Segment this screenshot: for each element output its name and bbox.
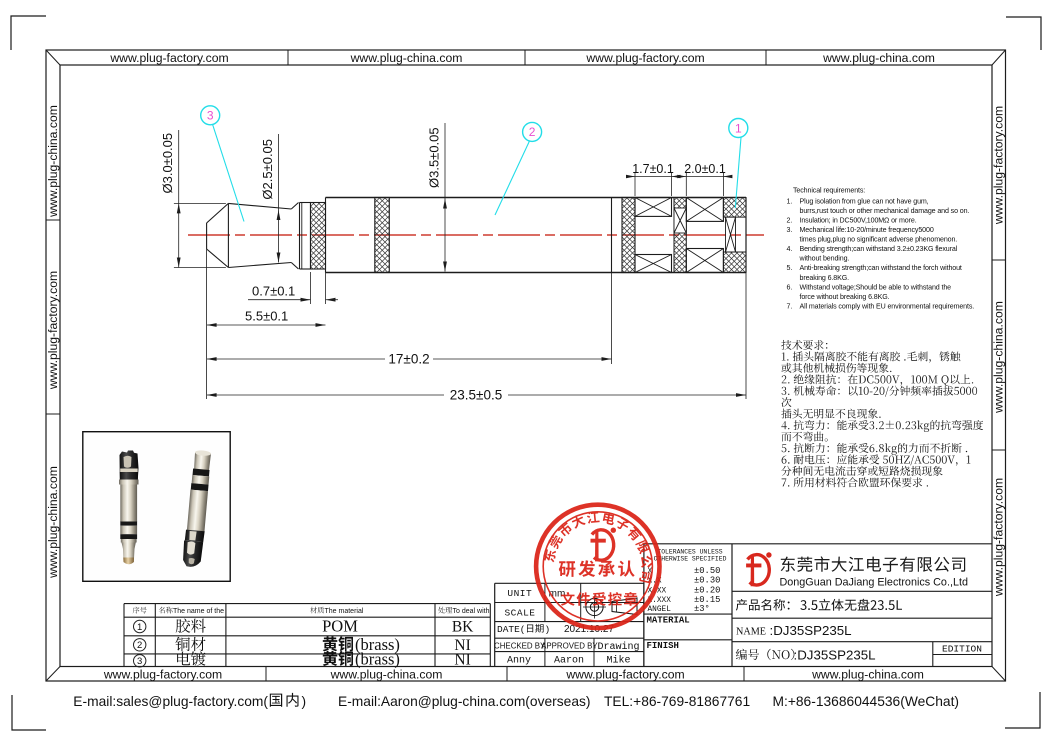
svg-text:BK: BK (452, 619, 474, 636)
svg-text:): ) (302, 694, 307, 709)
svg-text:EDITION: EDITION (942, 644, 982, 655)
svg-text:1: 1 (137, 622, 142, 633)
svg-text:3: 3 (137, 656, 142, 667)
svg-text:The material: The material (325, 608, 364, 615)
svg-text:www.plug-china.com: www.plug-china.com (46, 105, 60, 218)
svg-text:UNIT: UNIT (507, 588, 532, 599)
svg-text:Ø3.0±0.05: Ø3.0±0.05 (160, 133, 175, 194)
svg-text::DJ35SP235L: :DJ35SP235L (770, 623, 852, 638)
svg-text:www.plug-china.com: www.plug-china.com (992, 301, 1006, 414)
svg-text:4.: 4. (787, 245, 793, 253)
svg-text:TEL:+86-769-81867761: TEL:+86-769-81867761 (604, 694, 750, 709)
svg-text:www.plug-factory.com: www.plug-factory.com (46, 271, 60, 390)
svg-text:6.: 6. (787, 284, 793, 292)
svg-text:without bending.: without bending. (799, 255, 850, 263)
svg-text:www.plug-factory.com: www.plug-factory.com (103, 667, 222, 681)
svg-text:M:+86-13686044536(WeChat): M:+86-13686044536(WeChat) (773, 694, 960, 709)
svg-text:1.7±0.1: 1.7±0.1 (632, 162, 674, 176)
svg-text:www.plug-china.com: www.plug-china.com (350, 51, 463, 65)
svg-text:2: 2 (137, 640, 142, 651)
svg-text:Mechanical life:10-20/minute f: Mechanical life:10-20/minute frequency50… (800, 226, 934, 234)
svg-text:All materials comply with EU e: All materials comply with EU environment… (800, 303, 975, 311)
svg-text:Anti-breaking strength;can wit: Anti-breaking strength;can withstand the… (800, 264, 962, 272)
svg-text:burrs,rust touch or other mech: burrs,rust touch or other mechanical dam… (800, 207, 970, 215)
svg-text:1.: 1. (787, 197, 793, 205)
svg-text:www.plug-factory.com: www.plug-factory.com (585, 51, 704, 65)
svg-text:Anny: Anny (507, 656, 531, 667)
svg-text:7.: 7. (787, 303, 793, 311)
svg-text:DATE(: DATE( (497, 624, 526, 635)
svg-text:NAME: NAME (736, 627, 766, 638)
svg-text:3: 3 (207, 109, 214, 123)
svg-text:www.plug-china.com: www.plug-china.com (822, 51, 935, 65)
svg-text:The name of the: The name of the (173, 608, 224, 615)
svg-text:Plug isolation from glue can n: Plug isolation from glue can not have gu… (800, 197, 929, 205)
svg-text:To deal with: To deal with (453, 608, 490, 615)
svg-text:Technical requirements:: Technical requirements: (793, 187, 865, 195)
svg-text:17±0.2: 17±0.2 (388, 351, 429, 366)
svg-text:www.plug-china.com: www.plug-china.com (46, 466, 60, 579)
svg-text:Ø3.5±0.05: Ø3.5±0.05 (427, 127, 442, 188)
svg-text:±0.20: ±0.20 (694, 585, 720, 595)
svg-text:FINISH: FINISH (647, 641, 679, 651)
svg-text:(brass): (brass) (355, 650, 400, 669)
svg-text:): ) (545, 624, 551, 635)
svg-text:E-mail:Aaron@plug-china.com(ov: E-mail:Aaron@plug-china.com(overseas) (338, 694, 590, 709)
svg-text:CHECKED BY: CHECKED BY (494, 642, 546, 651)
svg-text:E-mail:sales@plug-factory.com(: E-mail:sales@plug-factory.com( (73, 694, 268, 709)
svg-text:www.plug-factory.com: www.plug-factory.com (992, 478, 1006, 597)
svg-text:2: 2 (529, 125, 536, 139)
svg-text:breaking 6.8KG.: breaking 6.8KG. (800, 274, 850, 282)
svg-text:www.plug-factory.com: www.plug-factory.com (109, 51, 228, 65)
svg-text:±3°: ±3° (694, 604, 710, 614)
svg-text:NI: NI (454, 652, 470, 669)
svg-text:www.plug-china.com: www.plug-china.com (330, 667, 443, 681)
svg-text:3.: 3. (787, 226, 793, 234)
svg-text:Mike: Mike (606, 655, 630, 667)
svg-text:MATERIAL: MATERIAL (647, 615, 690, 625)
svg-text:www.plug-factory.com: www.plug-factory.com (992, 106, 1006, 225)
svg-text:0.7±0.1: 0.7±0.1 (252, 284, 295, 299)
svg-text:Bending strength;can withstand: Bending strength;can withstand 3.2±0.23K… (800, 245, 958, 253)
svg-text:www.plug-china.com: www.plug-china.com (811, 667, 924, 681)
svg-text:23.5±0.5: 23.5±0.5 (450, 388, 502, 403)
svg-text:Ø2.5±0.05: Ø2.5±0.05 (260, 139, 275, 200)
svg-text:ANGEL: ANGEL (648, 606, 672, 614)
svg-text:DongGuan DaJiang Electronics C: DongGuan DaJiang Electronics Co.,Ltd (780, 577, 968, 589)
svg-text:TOLERANCES UNLESS: TOLERANCES UNLESS (657, 549, 722, 556)
svg-text:Drawing: Drawing (597, 641, 639, 653)
svg-text:Aaron: Aaron (554, 656, 584, 667)
svg-text:Withstand voltage;Should be ab: Withstand voltage;Should be able to with… (800, 284, 952, 292)
svg-text::DJ35SP235L: :DJ35SP235L (794, 647, 876, 662)
svg-text:times plug,plug no significant: times plug,plug no significant adverse p… (800, 236, 958, 244)
svg-text:2.0±0.1: 2.0±0.1 (684, 162, 726, 176)
svg-text:force without breaking 6.8KG.: force without breaking 6.8KG. (800, 293, 890, 301)
svg-text:1: 1 (735, 121, 742, 135)
svg-text:POM: POM (322, 617, 358, 636)
svg-text:OTHERWISE SPECIFIED: OTHERWISE SPECIFIED (654, 556, 727, 563)
svg-text:APPROVED BY: APPROVED BY (541, 642, 598, 651)
svg-text:2.: 2. (787, 217, 793, 225)
svg-text:±0.50: ±0.50 (694, 566, 720, 576)
svg-text:5.5±0.1: 5.5±0.1 (245, 309, 288, 324)
svg-text:±0.30: ±0.30 (694, 576, 720, 586)
svg-text:5.: 5. (787, 264, 793, 272)
svg-text:Insulation; in DC500V,100MΩ or: Insulation; in DC500V,100MΩ or more. (800, 217, 917, 225)
svg-text:www.plug-factory.com: www.plug-factory.com (565, 667, 684, 681)
svg-text:SCALE: SCALE (504, 608, 535, 619)
